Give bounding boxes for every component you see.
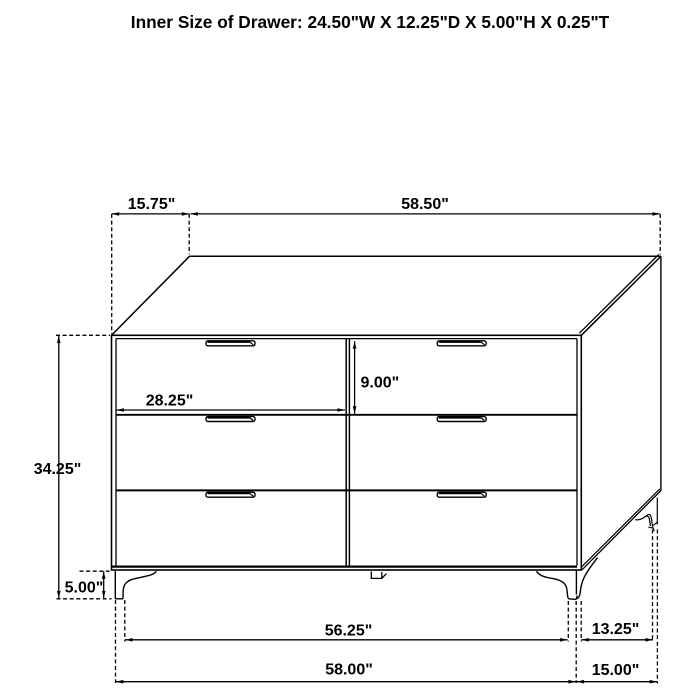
svg-text:5.00": 5.00" — [65, 580, 104, 597]
svg-text:15.75": 15.75" — [128, 196, 176, 213]
svg-text:Inner Size of Drawer: 24.50"W: Inner Size of Drawer: 24.50"W X 12.25"D … — [131, 12, 610, 32]
svg-text:15.00": 15.00" — [592, 662, 640, 679]
svg-text:28.25": 28.25" — [146, 393, 194, 410]
svg-text:58.00": 58.00" — [325, 661, 373, 678]
svg-text:34.25": 34.25" — [34, 461, 82, 478]
svg-text:9.00": 9.00" — [361, 375, 400, 392]
svg-text:56.25": 56.25" — [325, 623, 373, 640]
svg-text:13.25": 13.25" — [592, 621, 640, 638]
svg-text:58.50": 58.50" — [401, 196, 449, 213]
